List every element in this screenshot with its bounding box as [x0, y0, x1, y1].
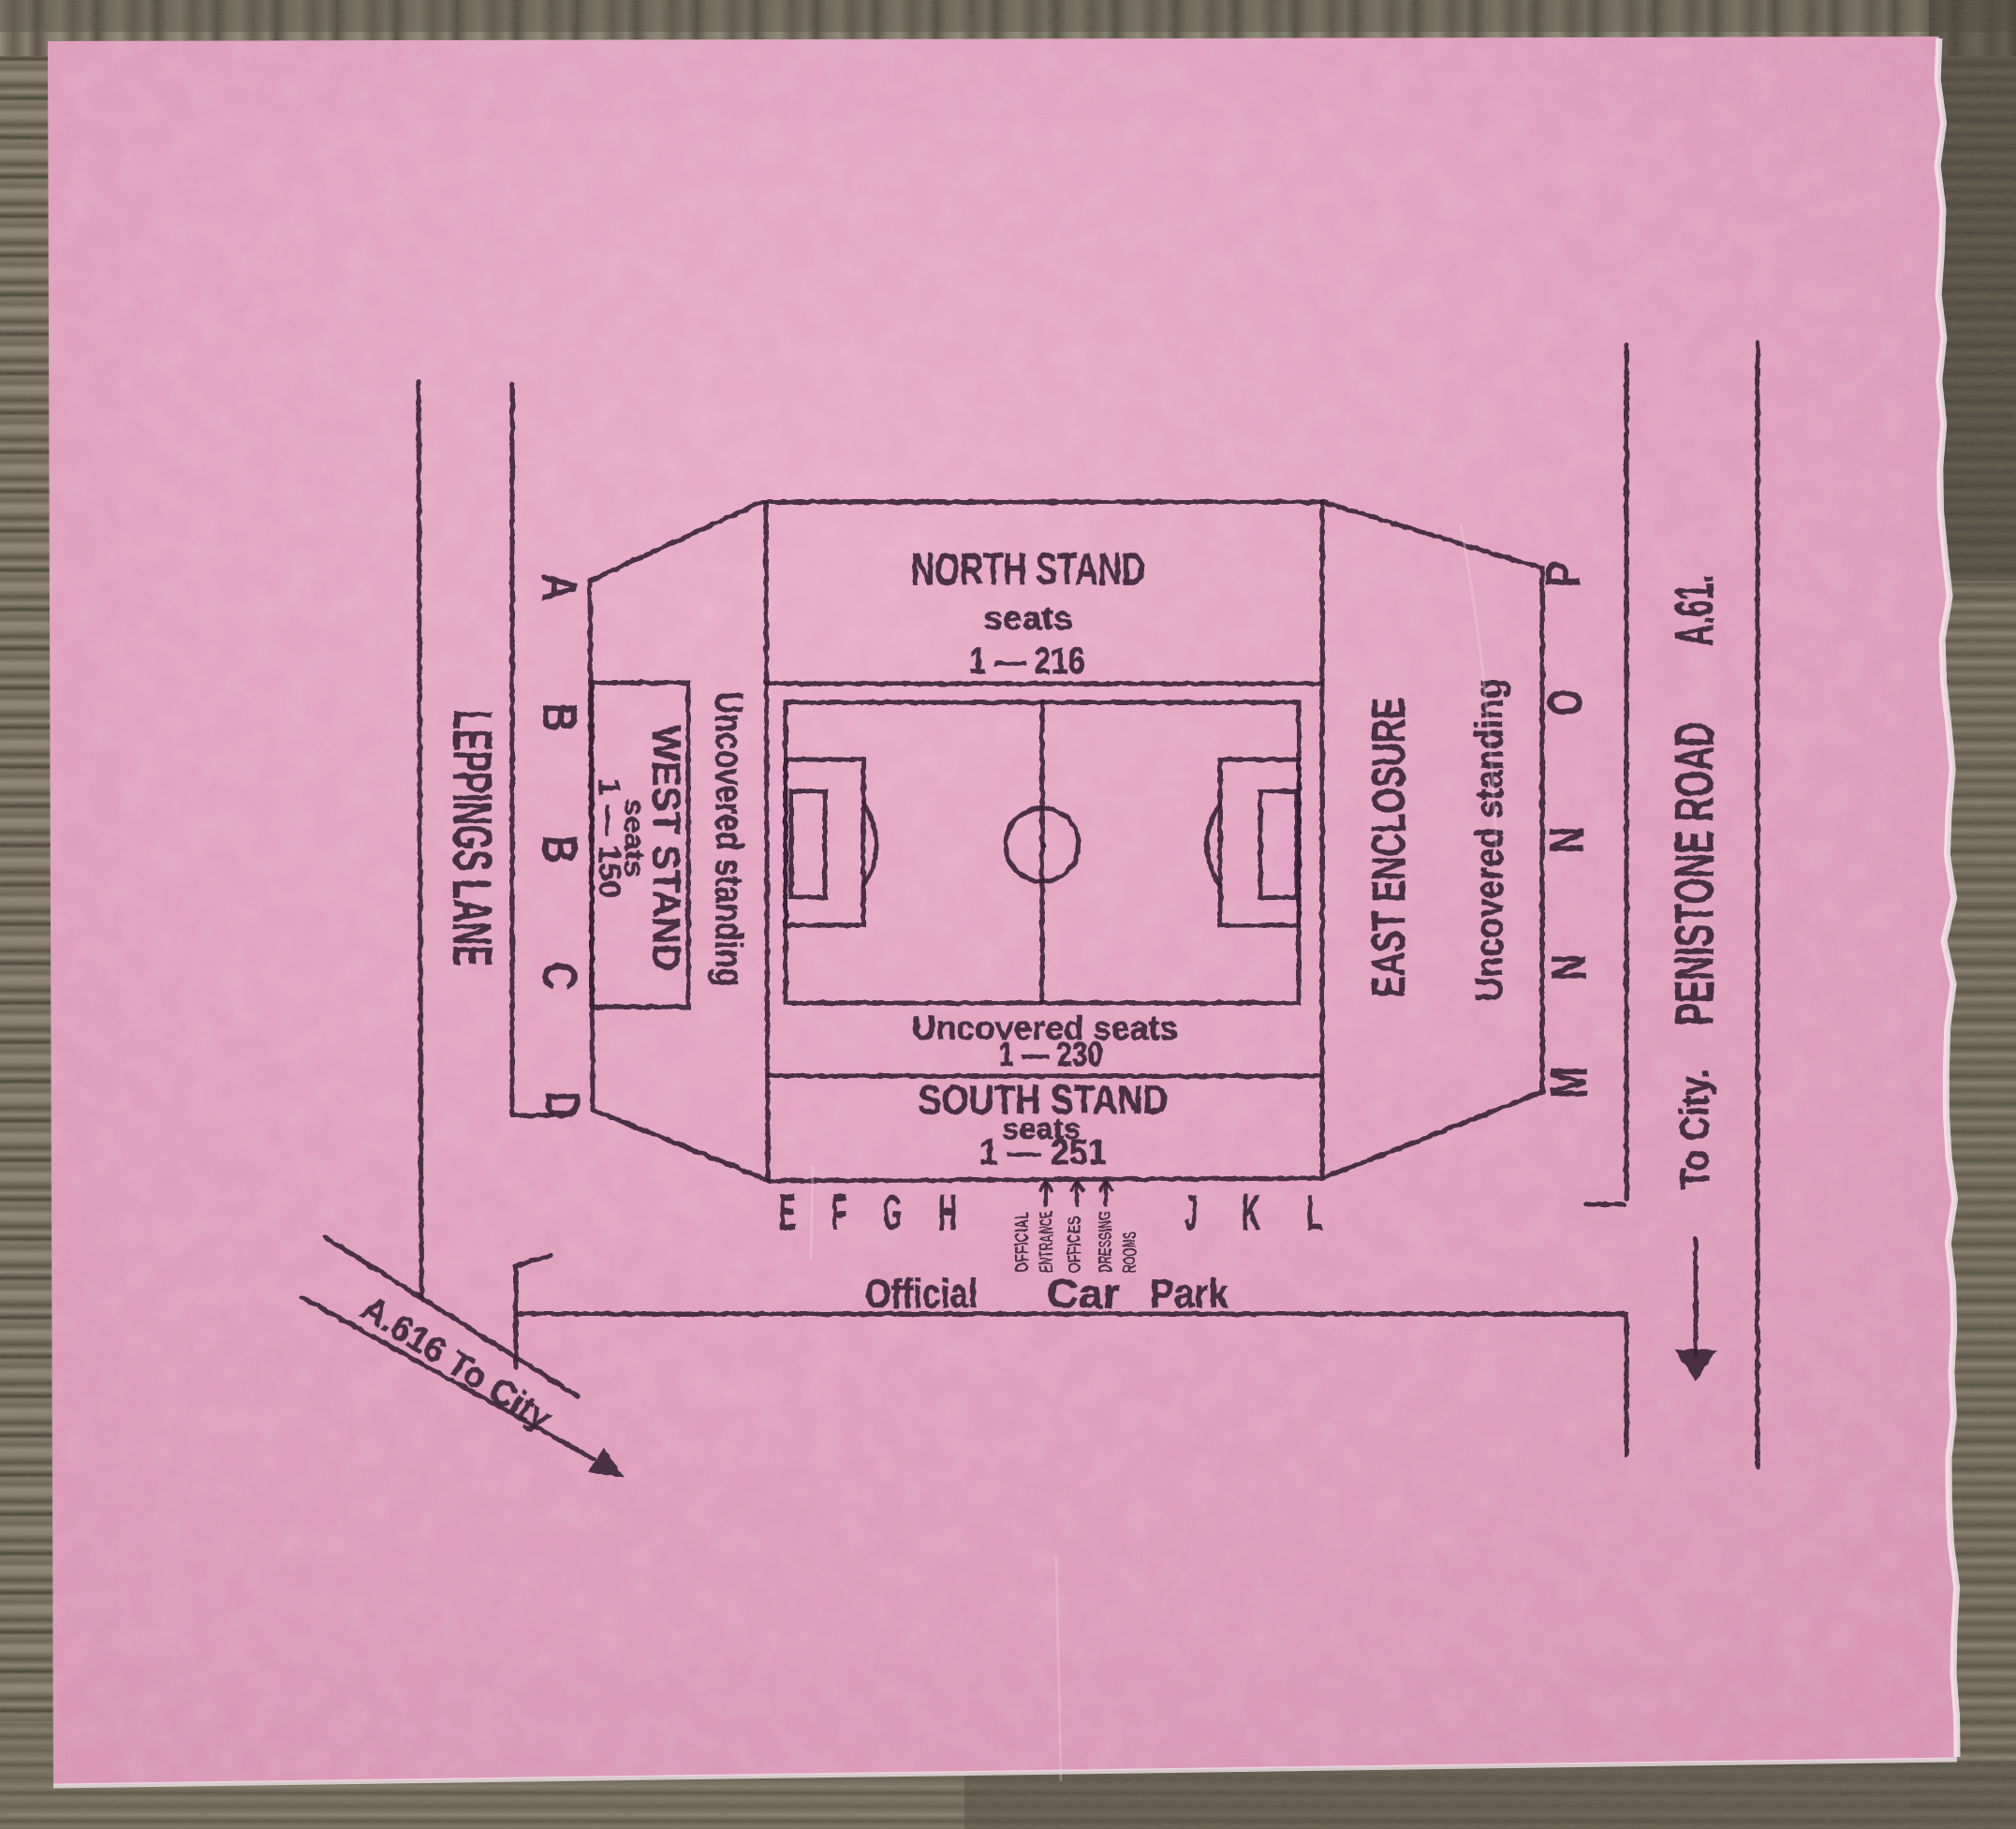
svg-text:EAST ENCLOSURE: EAST ENCLOSURE — [1362, 698, 1415, 997]
svg-text:N: N — [1540, 827, 1595, 853]
svg-text:H: H — [938, 1185, 957, 1241]
svg-text:Official: Official — [865, 1271, 978, 1317]
svg-text:E: E — [779, 1185, 796, 1241]
svg-text:LEPPINGS LANE: LEPPINGS LANE — [442, 710, 503, 966]
svg-text:K: K — [1242, 1185, 1260, 1241]
svg-text:1 — 251: 1 — 251 — [979, 1133, 1107, 1173]
svg-text:ENTRANCE: ENTRANCE — [1037, 1211, 1057, 1273]
svg-text:Car: Car — [1047, 1271, 1120, 1317]
svg-text:To City.: To City. — [1672, 1069, 1718, 1189]
svg-text:Park: Park — [1150, 1271, 1229, 1317]
svg-text:1 — 150: 1 — 150 — [593, 778, 626, 898]
svg-text:F: F — [831, 1185, 846, 1241]
svg-text:G: G — [883, 1185, 902, 1241]
svg-text:1 — 216: 1 — 216 — [969, 641, 1085, 682]
svg-text:C: C — [532, 962, 586, 990]
svg-text:DRESSING: DRESSING — [1096, 1211, 1116, 1273]
svg-text:OFFICIAL: OFFICIAL — [1012, 1211, 1033, 1273]
svg-text:WEST STAND: WEST STAND — [645, 726, 689, 971]
svg-text:D: D — [535, 1091, 589, 1119]
svg-text:OFFICES: OFFICES — [1065, 1217, 1085, 1273]
svg-text:L: L — [1306, 1185, 1323, 1241]
svg-text:seats: seats — [984, 598, 1073, 637]
svg-text:B: B — [532, 835, 586, 863]
svg-text:ROOMS: ROOMS — [1120, 1232, 1140, 1273]
svg-text:PENISTONE ROAD: PENISTONE ROAD — [1665, 722, 1726, 1025]
svg-text:Uncovered standing: Uncovered standing — [708, 692, 752, 987]
svg-text:A: A — [532, 573, 586, 601]
svg-text:J: J — [1185, 1185, 1198, 1241]
svg-text:1 — 230: 1 — 230 — [998, 1035, 1103, 1073]
svg-text:NORTH STAND: NORTH STAND — [911, 545, 1145, 595]
svg-text:M: M — [1539, 1067, 1598, 1099]
svg-text:O: O — [1538, 689, 1593, 715]
svg-text:N: N — [1542, 954, 1597, 981]
svg-text:B: B — [532, 703, 586, 731]
svg-text:P: P — [1537, 561, 1591, 587]
svg-text:A.61.: A.61. — [1665, 575, 1726, 646]
